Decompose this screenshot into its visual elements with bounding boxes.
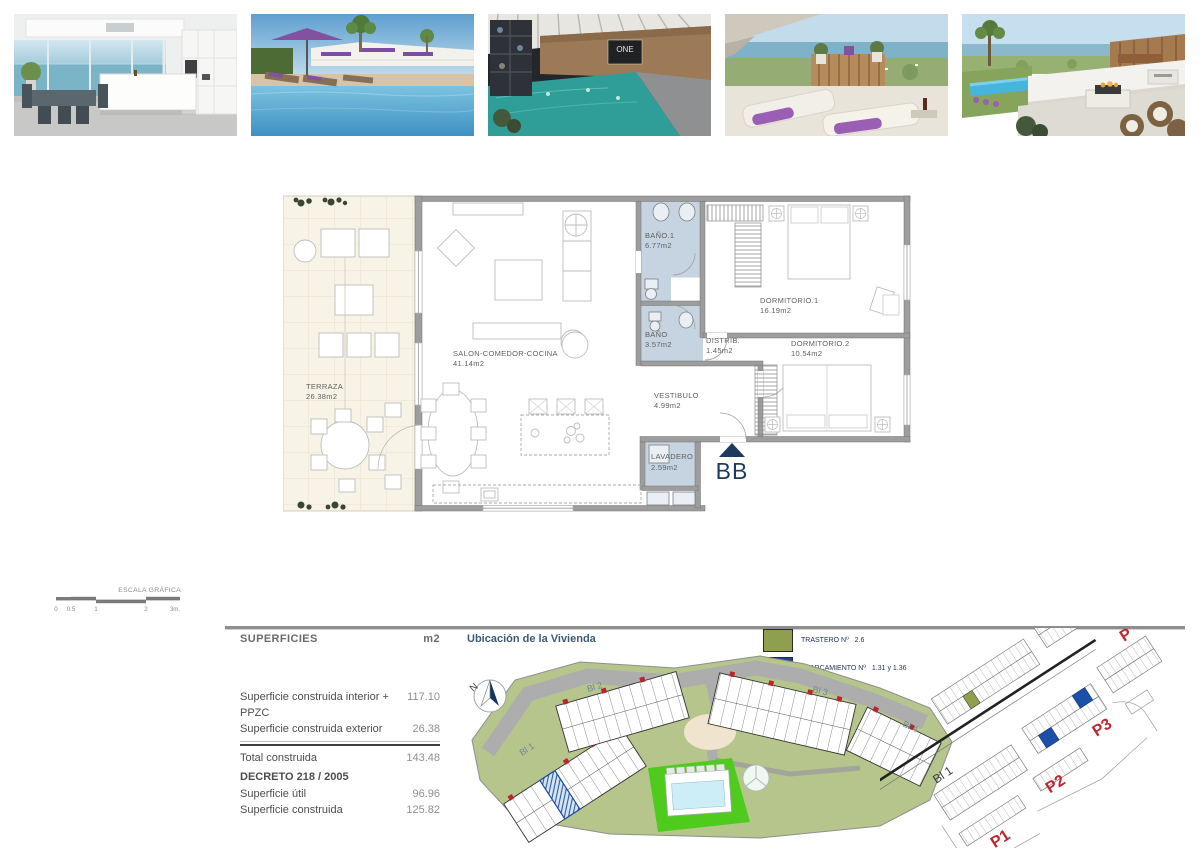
superficies-unit: m2: [423, 633, 440, 645]
scale-tick-2: 2: [144, 606, 148, 613]
kitchen-scene: [14, 14, 237, 136]
parking-level-partial: P: [1117, 628, 1135, 645]
decreto-label: DECRETO 218 / 2005: [240, 768, 440, 786]
table-rule-thick: [240, 744, 440, 746]
parking-block-label: Bl 1: [930, 763, 955, 786]
living-furniture: [421, 203, 591, 493]
row-label: Total construida: [240, 750, 317, 766]
room-label-lavadero: LAVADERO: [651, 452, 693, 461]
row-value: 143.48: [406, 750, 440, 766]
legend-label: TRASTERO Nº: [801, 637, 849, 644]
photo-kitchen-interior: [14, 14, 237, 136]
photo-indoor-spa: ONE: [488, 14, 711, 136]
room-area-dormitorio1: 16.19m2: [760, 306, 791, 315]
superficies-title: SUPERFICIES: [240, 633, 318, 645]
row-label: Superficie construida exterior: [240, 721, 382, 737]
row-value: 117.10: [407, 689, 440, 721]
pool: [664, 764, 731, 816]
entry-label: BB: [716, 458, 749, 484]
superficies-table: SUPERFICIES m2 Superficie construida int…: [240, 633, 440, 818]
room-area-distrib: 1.45m2: [706, 346, 733, 355]
floor-plan: TERRAZA 26.38m2 SALON-COMEDOR-COCINA 41.…: [283, 193, 931, 515]
scale-tick-3: 3m.: [170, 606, 181, 613]
room-label-terraza: TERRAZA: [306, 382, 343, 391]
table-row-total: Total construida 143.48: [240, 750, 440, 766]
photo-rooftop-terrace: [962, 14, 1185, 136]
room-area-vestibulo: 4.99m2: [654, 401, 681, 410]
table-row: Superficie construida 125.82: [240, 802, 440, 818]
rooftop-scene: [962, 14, 1185, 136]
row-value: 125.82: [406, 802, 440, 818]
scale-title: ESCALA GRÁFICA: [118, 585, 181, 594]
room-label-dormitorio1: DORMITORIO.1: [760, 296, 818, 305]
scale-segments: [56, 597, 180, 603]
room-area-dormitorio2: 10.54m2: [791, 349, 822, 358]
trastero-swatch: [763, 629, 793, 652]
room-label-vestibulo: VESTIBULO: [654, 391, 699, 400]
legend-value: 2.6: [855, 637, 865, 644]
room-area-terraza: 26.38m2: [306, 392, 337, 401]
room-label-salon: SALON-COMEDOR-COCINA: [453, 349, 558, 358]
terrace-area: [283, 196, 415, 511]
brochure-page: ONE: [0, 0, 1200, 848]
room-label-bano: BAÑO: [645, 330, 667, 339]
room-label-bano1: BAÑO.1: [645, 231, 674, 240]
parking-rotated-group: Bl 1 P1 P2 P3: [880, 628, 1200, 848]
room-area-bano1: 6.77m2: [645, 241, 672, 250]
room-area-bano: 3.57m2: [645, 340, 672, 349]
table-rule-thin: [240, 741, 440, 742]
table-row: Superficie construida interior + PPZC 11…: [240, 689, 440, 721]
room-area-salon: 41.14m2: [453, 359, 484, 368]
parking-level-p3: P3: [1090, 715, 1116, 740]
room-label-distrib: DISTRIB.: [706, 336, 740, 345]
entry-arrow-icon: [719, 443, 745, 457]
photo-terrace-view: [725, 14, 948, 136]
scale-tick-0: 0: [54, 606, 58, 613]
parking-stall-rows: [884, 628, 1189, 846]
graphic-scale: ESCALA GRÁFICA 0 0.5 1 2 3m.: [38, 584, 188, 616]
spa-sign-text: ONE: [616, 45, 633, 54]
table-row: Superficie útil 96.96: [240, 786, 440, 802]
kitchen-fixtures: [481, 399, 603, 501]
row-label: Superficie construida interior + PPZC: [240, 689, 407, 721]
row-label: Superficie útil: [240, 786, 306, 802]
parking-plan: Bl 1 P1 P2 P3: [880, 628, 1200, 848]
compass-icon: N: [468, 680, 506, 712]
terrace-scene: [725, 14, 948, 136]
bedroom2-furniture: [755, 365, 890, 435]
spa-scene: ONE: [488, 14, 711, 136]
ubicacion-title: Ubicación de la Vivienda: [467, 633, 596, 645]
table-row: Superficie construida exterior 26.38: [240, 721, 440, 737]
room-label-dormitorio2: DORMITORIO.2: [791, 339, 849, 348]
row-label: Superficie construida: [240, 802, 343, 818]
row-value: 26.38: [412, 721, 440, 737]
photo-outdoor-pool: [251, 14, 474, 136]
pool-scene: [251, 14, 474, 136]
scale-tick-1: 1: [94, 606, 98, 613]
room-area-lavadero: 2.59m2: [651, 463, 678, 472]
superficies-header: SUPERFICIES m2: [240, 633, 440, 645]
scale-tick-05: 0.5: [67, 606, 76, 613]
row-value: 96.96: [412, 786, 440, 802]
